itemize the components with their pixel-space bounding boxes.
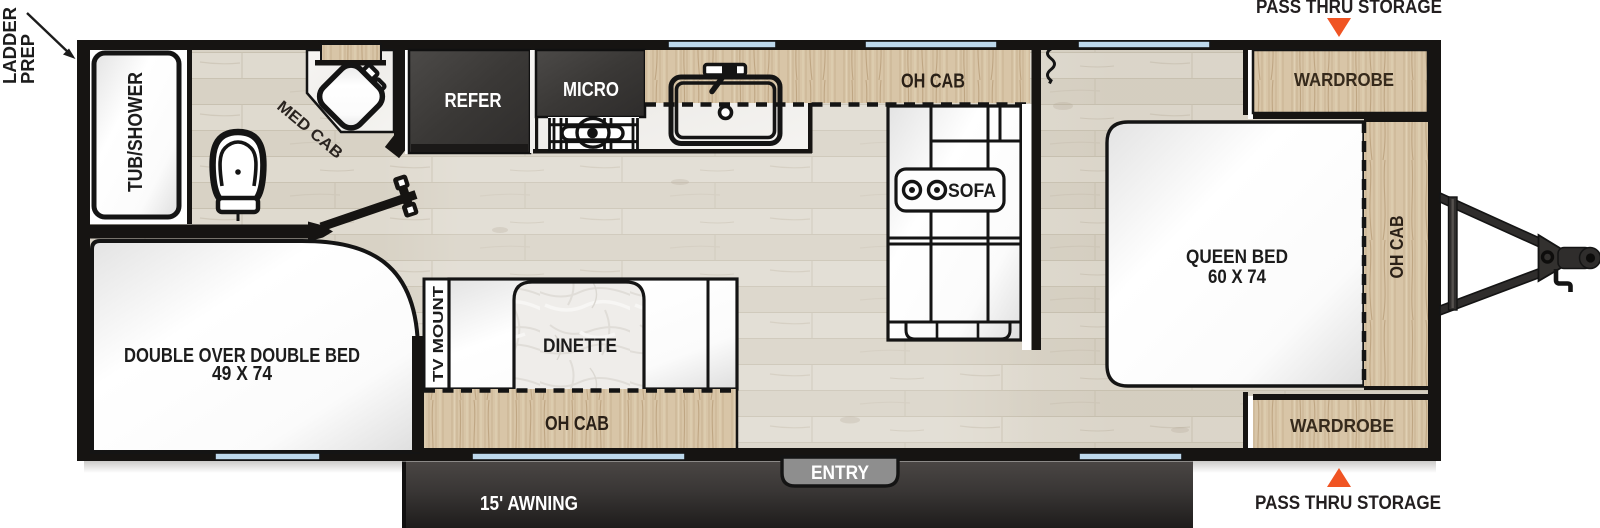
svg-text:WARDROBE: WARDROBE bbox=[1290, 416, 1394, 436]
svg-text:PASS THRU STORAGE: PASS THRU STORAGE bbox=[1256, 0, 1442, 18]
svg-text:DINETTE: DINETTE bbox=[543, 336, 617, 357]
svg-text:MICRO: MICRO bbox=[563, 79, 619, 101]
svg-text:LADDER: LADDER bbox=[0, 7, 20, 84]
svg-text:TV MOUNT: TV MOUNT bbox=[430, 286, 447, 382]
svg-text:REFER: REFER bbox=[445, 90, 502, 112]
svg-text:QUEEN BED: QUEEN BED bbox=[1186, 247, 1288, 268]
svg-text:OH CAB: OH CAB bbox=[901, 71, 965, 93]
svg-text:SOFA: SOFA bbox=[948, 181, 996, 202]
svg-text:WARDROBE: WARDROBE bbox=[1294, 70, 1394, 90]
svg-text:PASS THRU STORAGE: PASS THRU STORAGE bbox=[1255, 493, 1441, 514]
svg-text:TUB/SHOWER: TUB/SHOWER bbox=[125, 72, 147, 192]
svg-text:60 X 74: 60 X 74 bbox=[1208, 267, 1266, 288]
svg-text:15' AWNING: 15' AWNING bbox=[480, 493, 578, 515]
svg-text:ENTRY: ENTRY bbox=[811, 463, 869, 484]
svg-text:OH CAB: OH CAB bbox=[545, 413, 609, 435]
svg-text:49 X 74: 49 X 74 bbox=[212, 363, 273, 385]
svg-text:PREP: PREP bbox=[18, 34, 38, 84]
svg-text:OH CAB: OH CAB bbox=[1387, 216, 1407, 279]
